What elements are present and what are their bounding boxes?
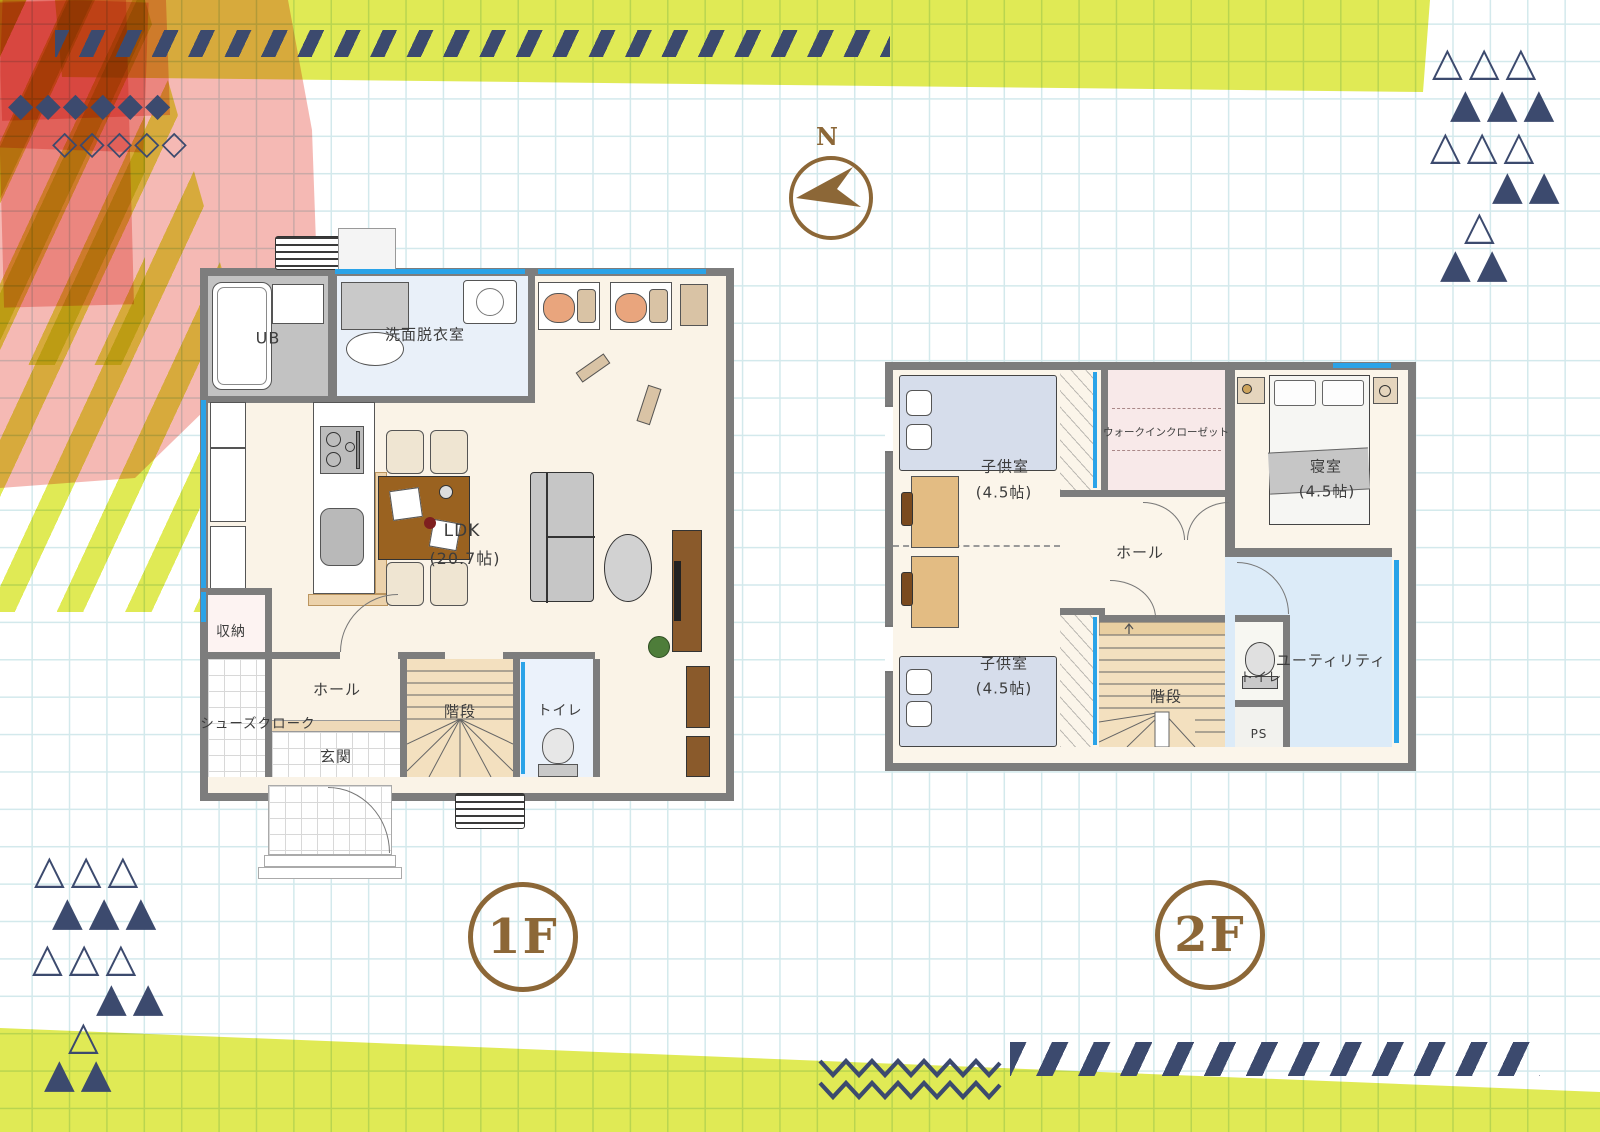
window-marker [538,269,706,274]
dining-chair-icon [386,430,424,474]
room-label-wic: ウォークインクローゼット [1103,425,1229,440]
kitchen-sink-icon [320,508,364,566]
window-marker [201,592,206,622]
room-label-ldk: LDK [444,521,481,541]
side-table-icon [680,284,708,326]
compass-icon [789,156,873,240]
chair-icon [901,492,913,526]
bed-icon [899,375,1057,471]
double-bed-icon [1269,375,1370,525]
window-gap [885,625,893,673]
triangle-row-icon: △ [68,1016,105,1056]
stove-icon [320,426,364,474]
porch-step [264,855,396,867]
bed-icon [899,656,1057,747]
floor2-badge: 2F [1155,880,1265,990]
wall [208,652,340,659]
floor1-badge: 1F [468,882,578,992]
plant-icon [648,636,670,658]
room-label-shoes-cloak: シューズクローク [200,712,315,732]
window-marker [1333,363,1391,368]
room-label-ps: PS [1251,727,1268,741]
wall [398,652,445,659]
room-label-shuno: 収納 [216,621,246,641]
room-label-hall-2f: ホール [1116,542,1164,563]
triangle-row-icon: △△△ [1432,42,1542,82]
window-marker [521,662,525,774]
wall [400,659,407,777]
room-label-senmen: 洗面脱衣室 [385,324,465,345]
triangle-row-icon: ▲▲ [96,978,170,1018]
triangle-row-icon: ▲▲ [1492,166,1566,206]
slash-row-top-icon [55,30,890,57]
stairs-2f-icon [1099,622,1227,747]
room-label-ub: UB [256,329,281,348]
diamond-row-filled-icon: ◆◆◆◆◆◆ [8,88,172,121]
closet-strip [1060,370,1097,490]
kitchen-counter [210,526,246,594]
ac-unit-icon [455,793,525,829]
clothes-rod [1112,408,1221,409]
nightstand-icon [1373,377,1398,404]
kitchen-counter [210,402,246,448]
triangle-row-icon: ▲▲▲ [1450,84,1560,124]
cabinet-icon [686,736,710,777]
wall [503,652,595,659]
window-marker [1394,560,1399,743]
floorplan-poster: ◆◆◆◆◆◆ ◇◇◇◇◇ △△△ ▲▲▲ △△△ ▲▲ △ ▲▲ △△△ ▲▲▲… [0,0,1600,1132]
kitchen-counter [210,448,246,522]
wall [1060,490,1105,497]
toilet-icon [542,728,574,764]
floorplan-2f: 子供室 (4.5帖) 子供室 (4.5帖) ウォークインクローゼット [885,362,1416,771]
desk-icon [911,556,959,628]
room-label-kids1-size: (4.5帖) [976,482,1033,503]
washing-machine-icon [463,280,517,324]
door-arc [1110,580,1156,618]
room-label-kids2: 子供室 [980,653,1028,674]
room-label-bedroom: 寝室 [1310,456,1342,477]
wall [1060,608,1105,615]
nightstand-icon [1237,377,1265,404]
triangle-row-icon: △△△ [1430,126,1540,166]
door-arc [1143,502,1185,540]
wall [1225,548,1392,557]
wall [528,276,535,403]
closet-strip [1060,615,1097,747]
room-label-toilet-1f: トイレ [538,700,583,720]
room-label-genkan: 玄関 [320,746,352,767]
triangle-row-icon: ▲▲ [44,1054,118,1094]
room-label-bedroom-size: (4.5帖) [1299,481,1356,502]
wall [265,588,272,659]
triangle-row-icon: △△△ [34,850,144,890]
sofa-icon [530,472,594,602]
window-marker [1093,617,1097,745]
bath-counter [272,284,324,324]
wall [1235,700,1283,707]
outdoor-box [338,228,396,274]
room-label-kids1: 子供室 [981,456,1029,477]
wall [1101,490,1225,497]
wall [1283,622,1290,747]
toy-item-icon [576,353,611,382]
triangle-row-icon: ▲▲ [1440,244,1514,284]
desk-icon [911,476,959,548]
room-label-kids2-size: (4.5帖) [976,678,1033,699]
clothes-rod [1112,450,1221,451]
zigzag-icon [818,1058,1003,1104]
cabinet-icon [686,666,710,728]
triangle-row-icon: △△△ [32,938,142,978]
window-marker [201,400,206,588]
room-label-stairs-2f: 階段 [1150,686,1182,707]
slash-row-bottom-icon [1010,1042,1540,1076]
armchair-icon [538,282,600,330]
diamond-row-outline-icon: ◇◇◇◇◇ [52,126,189,159]
wall [1235,615,1290,622]
room-label-stairs-1f: 階段 [444,701,476,722]
ottoman-icon [604,534,652,602]
wall [208,588,272,595]
floorplan-1f: UB 洗面脱衣室 [200,268,734,801]
window-gap [885,405,893,453]
window-marker [1093,372,1097,488]
triangle-row-icon: ▲▲▲ [52,892,162,932]
room-label-hall: ホール [313,679,361,700]
wall [328,276,337,396]
room-label-utility: ユーティリティ [1276,650,1386,671]
window-marker [335,269,525,274]
toilet-tank-icon [538,764,578,777]
chair-icon [901,572,913,606]
wall [593,659,600,777]
door-arc [1187,502,1229,540]
dining-chair-icon [430,430,468,474]
wall [513,659,520,777]
tv-board-icon [672,530,702,652]
room-label-ldk-size: (20.7帖) [429,545,500,569]
armchair-icon [610,282,672,330]
toy-item-icon [636,385,661,425]
triangle-row-icon: △ [1464,206,1501,246]
porch-step [258,867,402,879]
compass-north-label: N [789,122,865,151]
